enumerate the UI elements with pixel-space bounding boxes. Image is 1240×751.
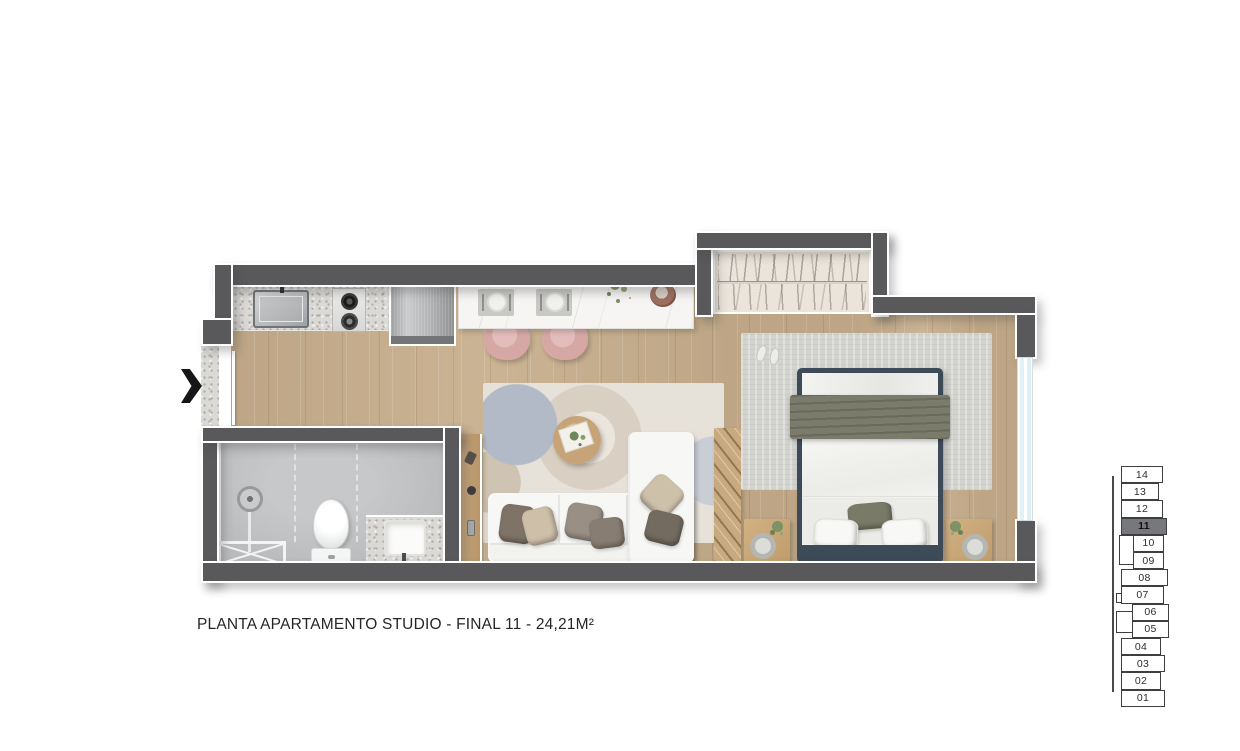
floor-item[interactable]: 02: [1121, 672, 1161, 689]
shower-partition: [294, 444, 296, 542]
floor-item[interactable]: 01: [1121, 690, 1165, 707]
window: [1017, 357, 1033, 521]
plate: [487, 292, 507, 312]
floor-stack: 1413121110090807060504030201: [1100, 455, 1240, 715]
floor-item[interactable]: 12: [1121, 500, 1163, 517]
bed: [797, 368, 943, 563]
floor-item[interactable]: 09: [1133, 552, 1164, 569]
knife-icon: [509, 294, 511, 311]
wall-bathroom-top: [201, 426, 461, 443]
sink-basin: [259, 296, 303, 322]
entry-threshold: [201, 346, 219, 428]
floor-item[interactable]: 10: [1133, 535, 1164, 552]
wall-bathroom-right: [443, 426, 461, 565]
wall-bottom: [201, 561, 1037, 583]
floor-item[interactable]: 06: [1132, 604, 1169, 621]
hanging-clothes-icon: [718, 284, 866, 310]
table-plant-icon: [568, 430, 579, 441]
building-notch: [1116, 611, 1133, 633]
vanity-sink: [384, 520, 426, 556]
floor-item[interactable]: 03: [1121, 655, 1165, 672]
page: PLANTA APARTAMENTO STUDIO - FINAL 11 - 2…: [0, 0, 1240, 751]
slatted-divider: [714, 428, 741, 563]
floor-selector: 1413121110090807060504030201: [1100, 455, 1240, 715]
bathroom-door: [459, 434, 482, 564]
door-handle-icon: [467, 520, 475, 536]
door-hardware-icon: [467, 486, 476, 495]
kitchen-sink: [253, 290, 309, 328]
plate: [545, 292, 565, 312]
vanity-counter: [366, 515, 444, 563]
nightstand-tray: [750, 533, 776, 559]
sofa-seat-seam: [558, 495, 560, 545]
fridge-base: [391, 336, 454, 344]
burner-icon: [341, 293, 358, 310]
wall-right-top: [871, 295, 1037, 315]
floor-item[interactable]: 13: [1121, 483, 1159, 500]
nightstand-tray: [962, 534, 988, 560]
placemat: [478, 289, 514, 316]
wall-left-step: [201, 318, 233, 346]
nightstand-plant-icon: [950, 521, 961, 532]
page-title: PLANTA APARTAMENTO STUDIO - FINAL 11 - 2…: [197, 616, 594, 634]
floor-item-selected[interactable]: 11: [1121, 518, 1167, 535]
fork-icon: [482, 294, 484, 311]
floor-item[interactable]: 04: [1121, 638, 1161, 655]
wall-left-upper: [213, 263, 233, 323]
toilet: [313, 499, 349, 549]
entrance-arrow-icon: [181, 369, 202, 403]
entry-door-leaf: [232, 351, 235, 425]
floor-item[interactable]: 07: [1121, 586, 1164, 603]
wall-right-upper: [1015, 313, 1037, 359]
closet-wardrobe: [713, 250, 871, 314]
placemat: [536, 289, 572, 316]
bed-duvet: [802, 437, 938, 497]
burner-icon: [341, 313, 358, 330]
vanity-faucet-icon: [402, 553, 406, 561]
floor-item[interactable]: 05: [1132, 621, 1169, 638]
floor-item[interactable]: 08: [1121, 569, 1168, 586]
sofa-cushion: [588, 516, 625, 550]
floor-item[interactable]: 14: [1121, 466, 1163, 483]
flush-button-icon: [328, 555, 335, 559]
shower-partition: [356, 444, 358, 542]
wall-closet-top: [695, 231, 889, 250]
door-hardware-icon: [464, 451, 477, 466]
bed-footboard: [802, 545, 938, 558]
floor-plan: [0, 0, 1240, 751]
knife-icon: [567, 294, 569, 311]
hanging-clothes-icon: [718, 254, 866, 281]
fork-icon: [540, 294, 542, 311]
shower-head-icon: [237, 486, 263, 512]
bed-sheet-top: [802, 373, 938, 397]
cooktop: [332, 288, 366, 332]
wall-left-lower: [201, 426, 219, 583]
refrigerator: [389, 284, 456, 346]
nightstand-plant-icon: [772, 521, 783, 532]
bed-throw-blanket: [790, 395, 950, 439]
fridge-brushed-texture: [391, 286, 454, 336]
wall-top: [213, 263, 699, 287]
